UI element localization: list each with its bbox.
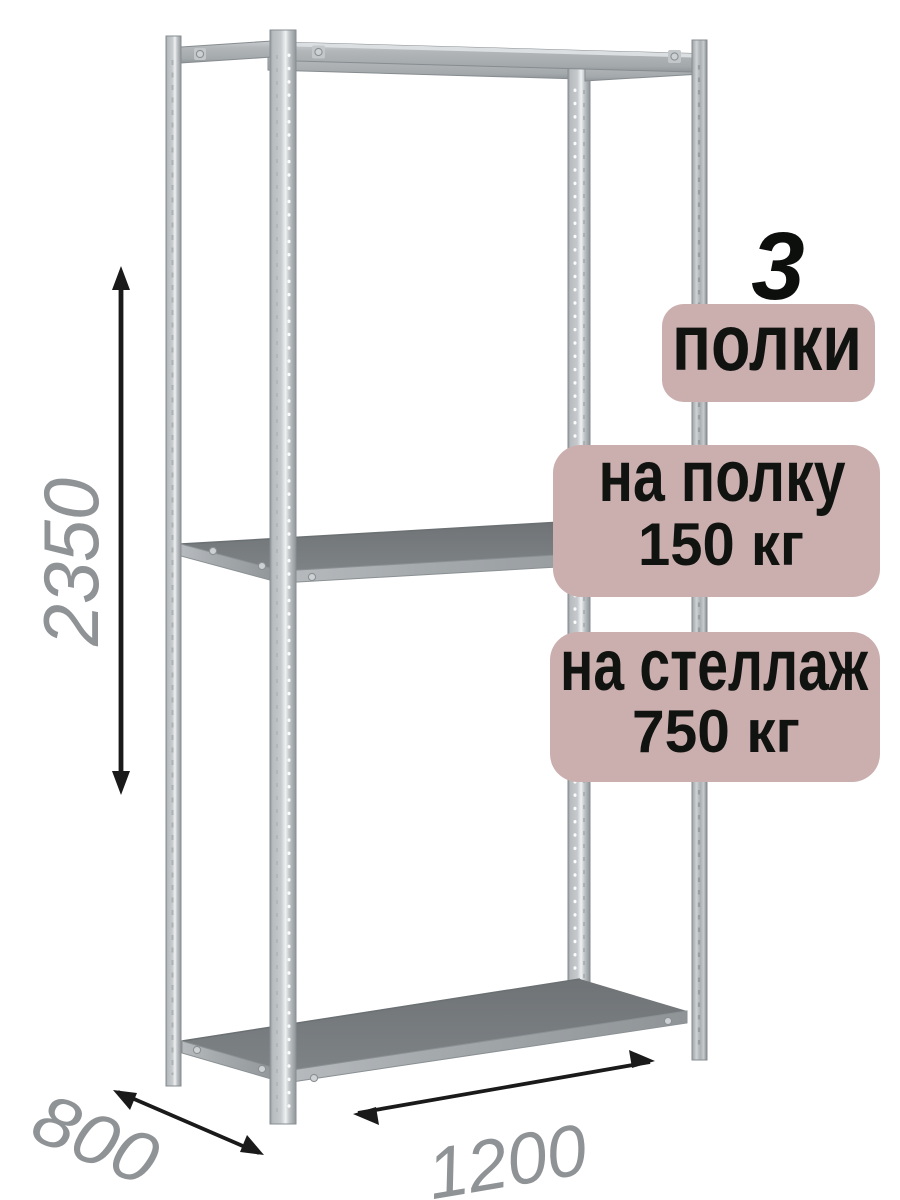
svg-text:2350: 2350 [27,478,115,647]
svg-text:1200: 1200 [422,1110,593,1200]
svg-text:150 кг: 150 кг [638,511,804,578]
svg-text:на полку: на полку [599,437,846,517]
svg-text:на стеллаж: на стеллаж [560,626,869,706]
svg-text:полки: полки [672,298,862,387]
svg-text:800: 800 [21,1078,169,1200]
svg-text:750 кг: 750 кг [632,698,800,765]
